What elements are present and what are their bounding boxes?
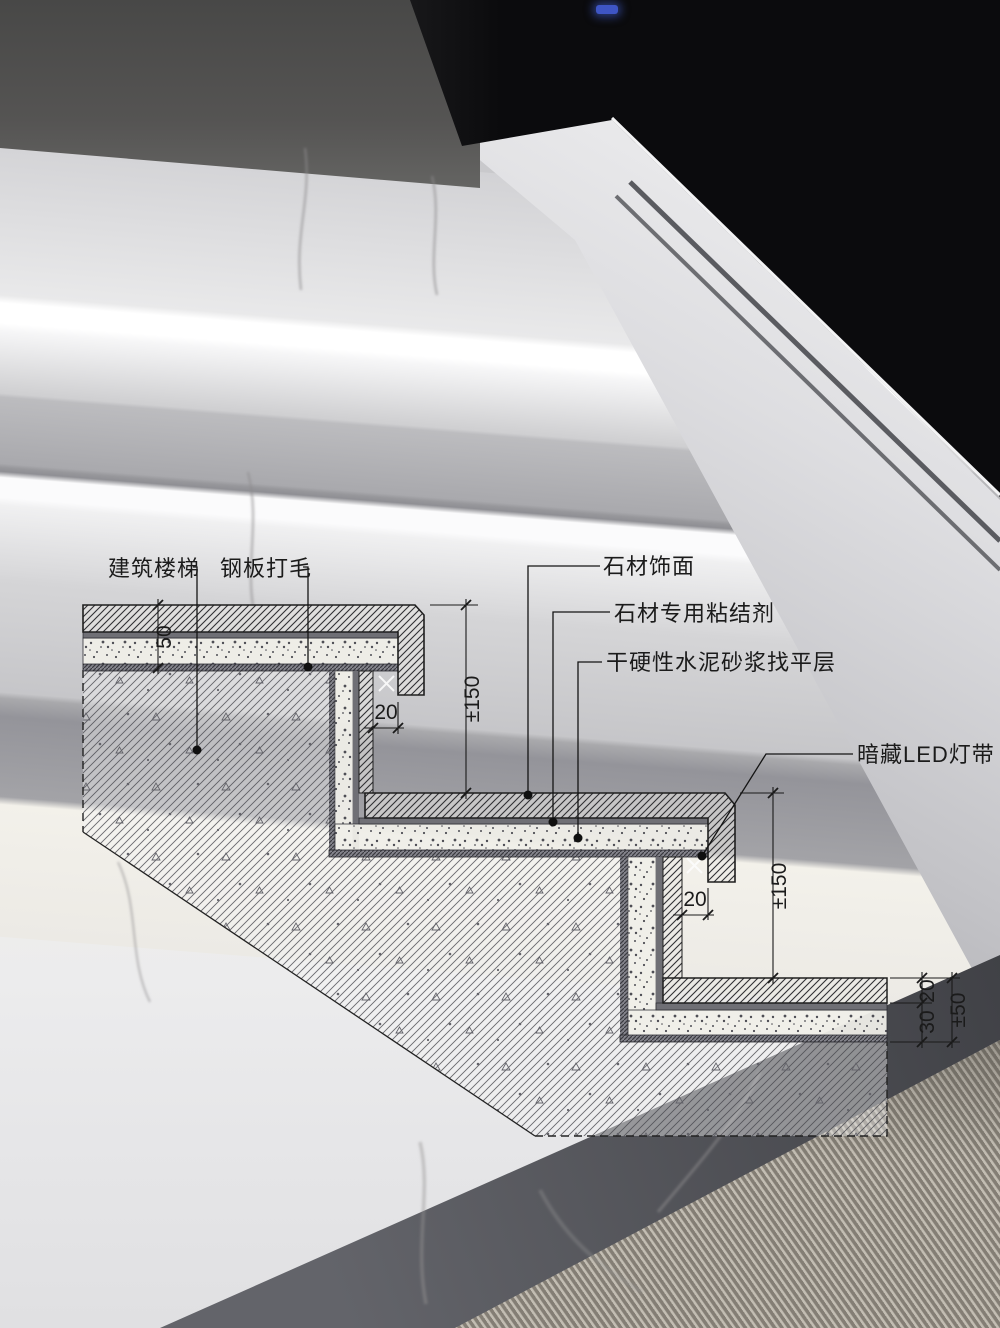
floor-mortar-bed — [628, 1010, 887, 1035]
dim-tread-buildup: 50 — [153, 625, 176, 648]
dim-floor-total: ±50 — [947, 993, 970, 1028]
step2-riser-adhesive — [656, 857, 663, 1010]
concrete-structure — [83, 670, 887, 1136]
floor-steel-plate — [620, 1035, 887, 1042]
floor-stone — [663, 978, 887, 1003]
label-stone-finish: 石材饰面 — [603, 554, 695, 579]
dim-riser1: ±150 — [461, 676, 484, 723]
label-building-stair: 建筑楼梯 — [108, 556, 200, 581]
step1-mortar-bed — [83, 638, 398, 664]
step1-riser-steel — [329, 671, 335, 857]
step2-steel-plate — [329, 850, 708, 857]
dim-riser2: ±150 — [768, 863, 791, 910]
step2-riser-steel — [620, 857, 628, 1042]
step1-led-mark — [379, 676, 394, 691]
dim-gap-step1: 20 — [374, 701, 397, 724]
step1-riser-stone — [359, 671, 373, 793]
label-steel-plate: 钢板打毛 — [220, 556, 312, 581]
handrail-groove-lines — [612, 118, 1000, 570]
dim-gap-step2: 20 — [683, 888, 706, 911]
step1-adhesive — [83, 632, 398, 638]
screenshot-root: 50 20 ±150 20 ±150 20 30 ±50 — [0, 0, 1000, 1328]
construction-detail-drawing: 50 20 ±150 20 ±150 20 30 ±50 — [0, 0, 1000, 1328]
step2-led-mark — [687, 858, 702, 873]
dim-floor-bed: 30 — [916, 1010, 939, 1033]
step1-steel-plate — [83, 664, 398, 671]
floor-adhesive — [656, 1003, 887, 1010]
label-stone-adhesive: 石材专用粘结剂 — [614, 601, 775, 626]
step2-mortar-bed — [335, 824, 708, 850]
dim-floor-stone: 20 — [916, 979, 939, 1002]
label-mortar-leveling: 干硬性水泥砂浆找平层 — [606, 650, 836, 675]
step2-riser-mortar — [628, 857, 656, 1035]
step2-adhesive — [359, 818, 708, 824]
label-led-strip: 暗藏LED灯带 — [857, 742, 995, 767]
